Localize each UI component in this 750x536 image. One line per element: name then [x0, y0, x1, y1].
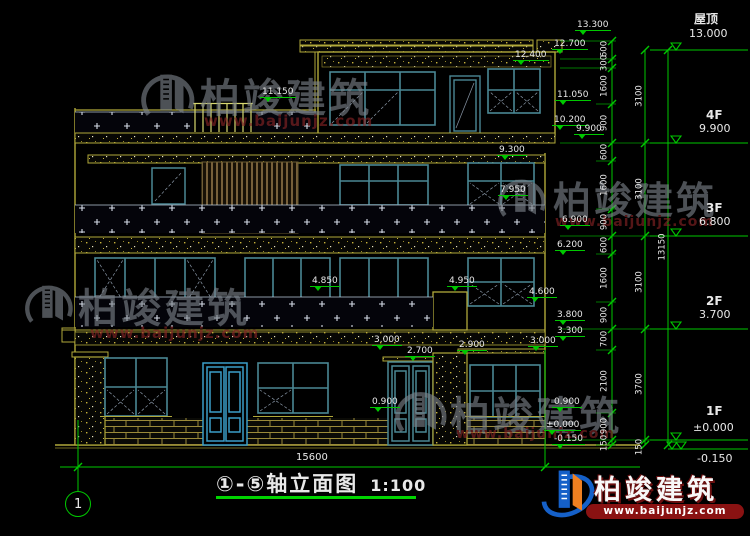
eyebrow-canopy	[88, 155, 545, 163]
cad-elevation-screenshot: 柏竣建筑 www.baijunjz.com 柏竣建筑 www.baijunjz.…	[0, 0, 750, 536]
entry-door	[203, 363, 247, 445]
floor-slab-4f	[75, 133, 555, 143]
watermark-url: www.baijunjz.com	[456, 426, 615, 442]
floor-elev: 6.800	[699, 215, 731, 228]
floor-elev: ±0.000	[693, 421, 734, 434]
drawing-scale: 1:100	[370, 476, 426, 495]
floor-name: 屋顶	[694, 10, 718, 27]
elevation-marker: 12.700	[552, 39, 588, 50]
floor-name: 1F	[706, 404, 723, 418]
elevation-marker: 12.400	[513, 50, 549, 61]
floor-name: 2F	[706, 294, 723, 308]
dim-segment: 150	[601, 435, 610, 451]
base-elevation: -0.150	[697, 452, 732, 465]
dim-floor-height: 3700	[636, 373, 645, 395]
stone-pier	[75, 357, 105, 445]
elevation-marker: 9.300	[497, 145, 527, 156]
elevation-marker: 13.300	[575, 20, 611, 31]
elevation-marker: 4.600	[527, 287, 557, 298]
title-underline	[216, 496, 416, 499]
overall-width-dimension: 15600	[296, 452, 328, 463]
elevation-marker: 11.150	[260, 87, 296, 98]
floor-elev: 3.700	[699, 308, 731, 321]
dim-segment: 1600	[601, 174, 610, 196]
watermark-url: www.baijunjz.com	[90, 324, 259, 342]
dim-segment: 900	[601, 115, 610, 131]
watermark: 柏竣建筑 www.baijunjz.com	[140, 64, 198, 130]
dim-segment: 2100	[601, 370, 610, 392]
elevation-marker: 3.800	[555, 310, 585, 321]
watermark: 柏竣建筑 www.baijunjz.com	[24, 276, 76, 336]
watermark-logo-icon	[140, 64, 198, 126]
elevation-marker: 4.850	[310, 276, 340, 287]
elevation-marker: 7.950	[498, 185, 528, 196]
floor-elev: 13.000	[689, 27, 728, 40]
elevation-marker: 2.900	[457, 340, 487, 351]
balcony-parapet-band	[75, 205, 545, 233]
pier-capital	[72, 352, 108, 357]
dim-segment: 300	[601, 55, 610, 71]
elevation-marker: 3.000	[372, 335, 402, 346]
window	[468, 258, 534, 306]
dim-floor-height: 3100	[636, 85, 645, 107]
balcony-window	[152, 168, 185, 204]
wall-pier	[433, 292, 467, 330]
dim-segment: 900	[601, 418, 610, 434]
drawing-title: ①-⑤轴立面图1:100	[216, 468, 426, 498]
elevation-marker: 3.000	[528, 336, 558, 347]
window	[340, 165, 428, 205]
dim-floor-height: 3100	[636, 178, 645, 200]
dim-segment: 1600	[601, 75, 610, 97]
floor-elev: 9.900	[699, 122, 731, 135]
penthouse-door	[450, 76, 480, 135]
dim-segment: 900	[601, 307, 610, 323]
brand-name: 柏竣建筑	[594, 468, 718, 507]
elevation-marker: 0.900	[552, 397, 582, 408]
dim-segment: 600	[601, 237, 610, 253]
building-elevation-drawing	[0, 0, 750, 536]
ground-line	[55, 445, 640, 448]
dim-total-height: 13150	[659, 233, 668, 260]
elevation-marker: 0.900	[370, 397, 400, 408]
brand-url: www.baijunjz.com	[586, 504, 744, 519]
elevation-marker: 6.200	[555, 240, 585, 251]
dim-floor-height: 150	[636, 439, 645, 455]
watermark-logo-icon	[394, 382, 450, 442]
floor-name: 4F	[706, 108, 723, 122]
dim-segment: 1600	[601, 267, 610, 289]
floor-3f	[75, 155, 545, 253]
elevation-marker: ±0.000	[544, 420, 581, 431]
elevation-marker: 6.900	[560, 215, 590, 226]
watermark-url: www.baijunjz.com	[204, 112, 373, 130]
drawing-title-text: ①-⑤轴立面图	[216, 472, 358, 496]
dim-segment: 600	[601, 144, 610, 160]
elevation-marker: -0.150	[552, 434, 585, 445]
window	[340, 258, 428, 300]
elevation-marker: 3.300	[555, 326, 585, 337]
elevation-marker: 11.050	[555, 90, 591, 101]
dim-segment: 700	[601, 331, 610, 347]
watermark: 柏竣建筑 www.baijunjz.com	[394, 382, 450, 446]
watermark-logo-icon	[24, 276, 76, 332]
dim-segment: 900	[601, 214, 610, 230]
elevation-marker: 2.700	[405, 346, 435, 357]
floor-slab-3f	[75, 237, 545, 253]
window	[105, 358, 167, 416]
floor-name: 3F	[706, 201, 723, 215]
dim-floor-height: 3100	[636, 271, 645, 293]
elevation-marker: 4.950	[447, 276, 477, 287]
axis-bubble-label: 1	[74, 497, 82, 512]
